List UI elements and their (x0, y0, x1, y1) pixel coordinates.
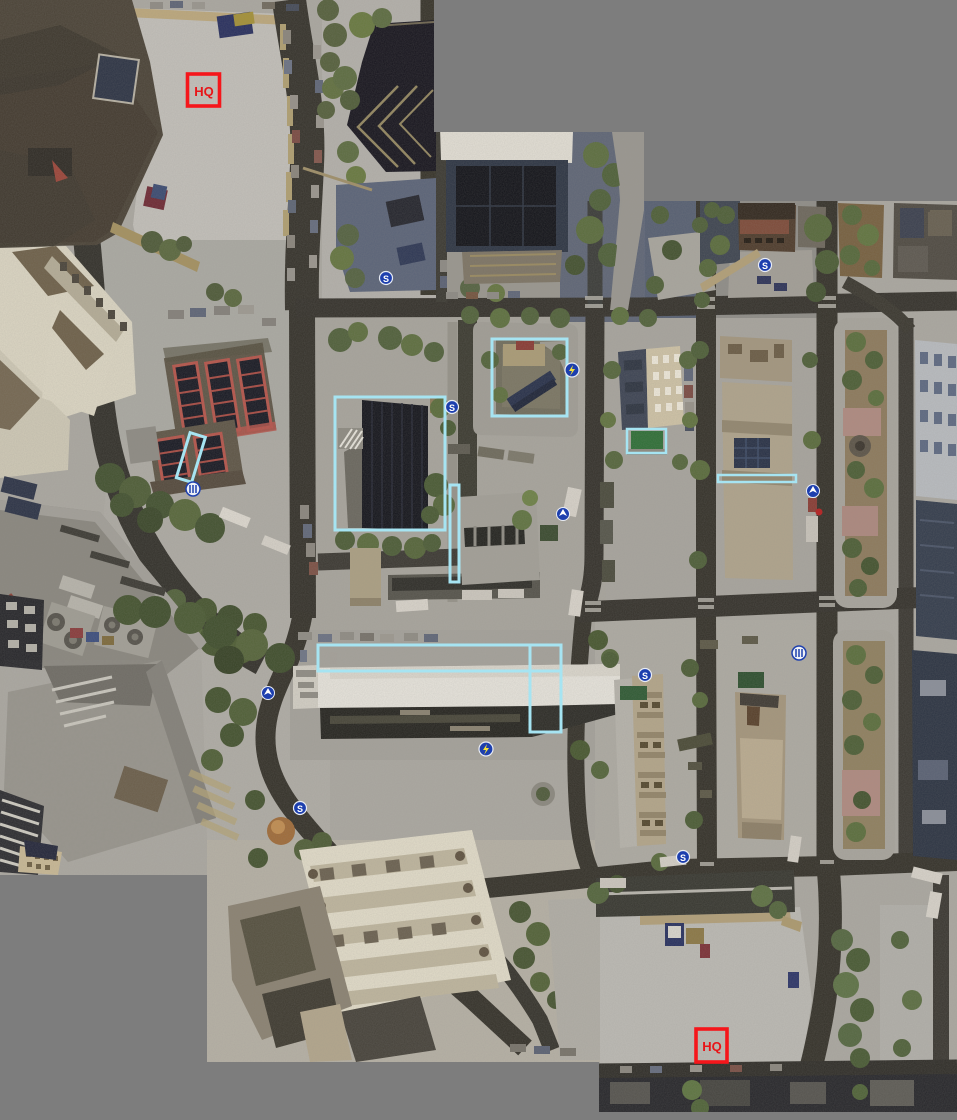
svg-text:S: S (383, 274, 389, 284)
svg-text:S: S (680, 853, 686, 863)
svg-text:S: S (762, 261, 768, 271)
svg-text:S: S (297, 804, 303, 814)
svg-text:S: S (642, 671, 648, 681)
svg-text:HQ: HQ (194, 84, 214, 99)
svg-text:HQ: HQ (702, 1039, 722, 1054)
svg-text:S: S (449, 403, 455, 413)
